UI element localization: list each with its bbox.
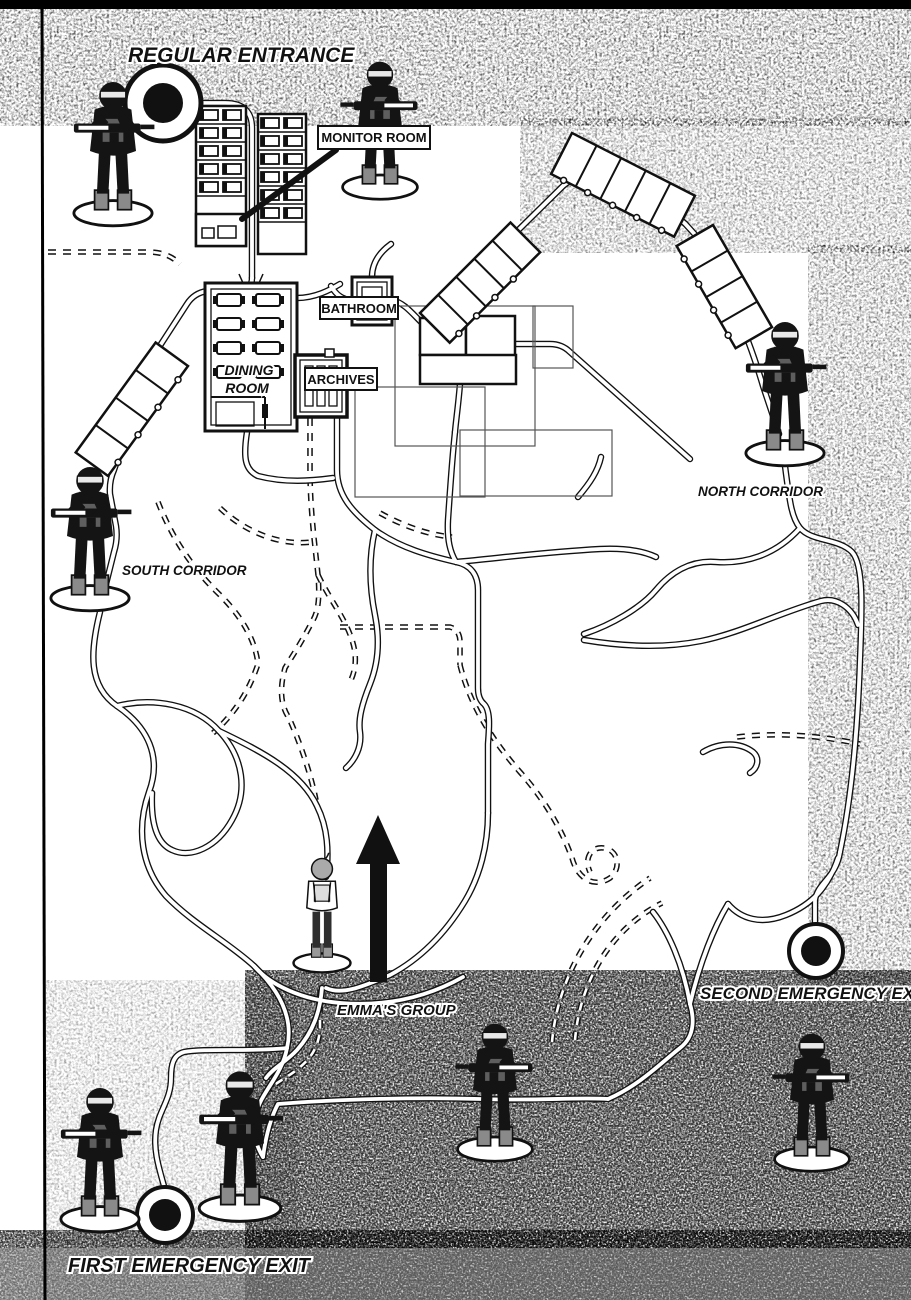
archives-label: ARCHIVES: [305, 368, 377, 390]
regular-entrance-label: REGULAR ENTRANCE: [128, 44, 355, 67]
entrance-bunk-bank-right: [258, 114, 306, 254]
bathroom-label: BATHROOM: [320, 297, 398, 319]
second-emergency-exit-marker: [789, 924, 843, 978]
bathroom-label-text: BATHROOM: [321, 301, 397, 316]
monitor-room: [196, 214, 246, 246]
north-corridor-label: NORTH CORRIDOR: [698, 484, 823, 499]
map-canvas: MONITOR ROOM BATHROOM ARCHIVES REGULAR E…: [0, 0, 911, 1300]
monitor-room-label-text: MONITOR ROOM: [321, 130, 426, 145]
first-emergency-exit-marker: [137, 1187, 193, 1243]
panel-border-top: [0, 0, 911, 9]
second-emergency-exit-label: SECOND EMERGENCY EXIT: [700, 984, 911, 1003]
dining-room-label-line1: DINING: [225, 362, 274, 378]
monitor-room-label: MONITOR ROOM: [318, 126, 430, 149]
manga-facility-map: MONITOR ROOM BATHROOM ARCHIVES REGULAR E…: [0, 0, 911, 1300]
archives-label-text: ARCHIVES: [307, 372, 375, 387]
south-corridor-label: SOUTH CORRIDOR: [122, 563, 247, 578]
dining-room: [205, 274, 297, 431]
first-emergency-exit-label: FIRST EMERGENCY EXIT: [68, 1255, 312, 1277]
emmas-group-label: EMMA'S GROUP: [337, 1002, 457, 1019]
dining-room-label-line2: ROOM: [225, 380, 269, 396]
